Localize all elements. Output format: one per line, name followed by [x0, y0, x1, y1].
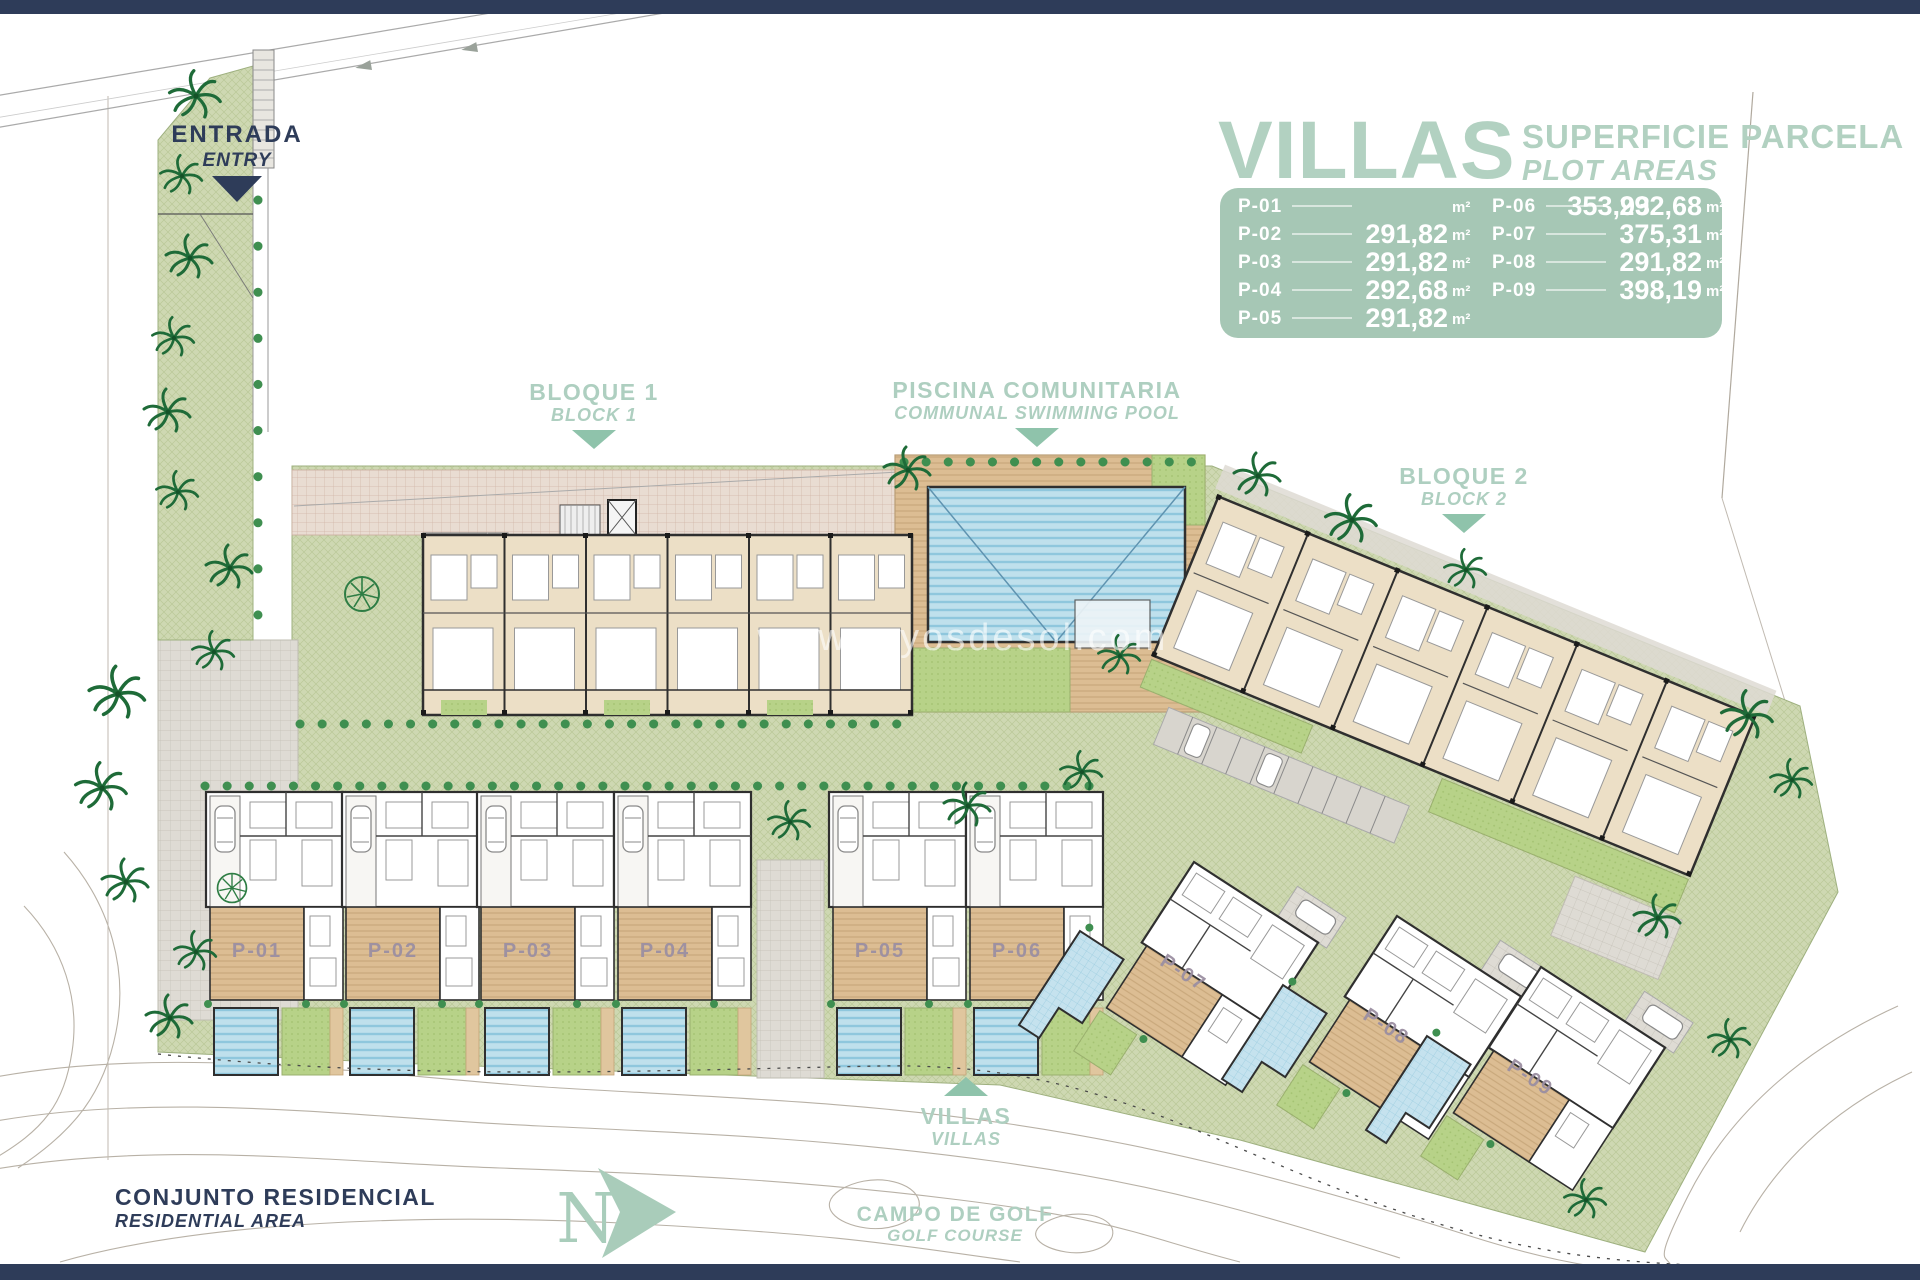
block2-label-en: BLOCK 2	[1421, 489, 1507, 509]
villa-p05	[827, 792, 966, 1075]
legend-row-area: 291,82	[1365, 303, 1448, 333]
legend-row-unit: m²	[1706, 283, 1724, 300]
legend-row-unit: m²	[1452, 199, 1470, 216]
top-navy-bar	[0, 0, 1920, 14]
legend-row-plot: P-03	[1238, 252, 1282, 273]
block1-label-en: BLOCK 1	[551, 405, 637, 425]
legend-row-plot: P-06	[1492, 196, 1536, 217]
plot-label-p02: P-02	[368, 940, 418, 962]
bottom-navy-bar	[0, 1264, 1920, 1280]
legend-row-plot: P-05	[1238, 308, 1282, 329]
plot-label-p04: P-04	[640, 940, 690, 962]
legend-subtitle: SUPERFICIE PARCELA	[1522, 118, 1904, 155]
legend-row-area: 292,68	[1365, 275, 1448, 305]
villas-pointer-es: VILLAS	[921, 1103, 1012, 1129]
legend-row-unit: m²	[1452, 227, 1470, 244]
plot-label-p03: P-03	[503, 940, 553, 962]
legend-row-unit: m²	[1706, 199, 1724, 216]
legend-row-unit: m²	[1452, 311, 1470, 328]
legend-row-plot: P-04	[1238, 280, 1282, 301]
legend-row-unit: m²	[1706, 255, 1724, 272]
legend-row-area: 291,82	[1365, 219, 1448, 249]
legend-row-unit: m²	[1452, 283, 1470, 300]
residential-label-en: RESIDENTIAL AREA	[115, 1211, 306, 1231]
legend-row-area: 375,31	[1619, 219, 1702, 249]
legend-row-area: 291,82	[1365, 247, 1448, 277]
legend-row-plot: P-08	[1492, 252, 1536, 273]
villas-pointer-en: VILLAS	[931, 1129, 1001, 1149]
legend-row-area: 292,68	[1619, 191, 1702, 221]
site-plan-canvas: P-01 P-02 P-03 P-04 P-05 P-06 P-07 P-08 …	[0, 0, 1920, 1280]
legend-title: VILLAS	[1218, 105, 1516, 196]
entrance-label-es: ENTRADA	[171, 121, 302, 148]
legend-row-plot: P-02	[1238, 224, 1282, 245]
legend-row-unit: m²	[1706, 227, 1724, 244]
communal-pool-label-es: PISCINA COMUNITARIA	[892, 377, 1181, 403]
golf-label-en: GOLF COURSE	[887, 1226, 1023, 1245]
legend-row-area: 398,19	[1619, 275, 1702, 305]
entrance-label-en: ENTRY	[202, 150, 272, 171]
watermark: www.rayosdesol.com	[757, 617, 1169, 659]
block1-label-es: BLOQUE 1	[529, 379, 659, 405]
legend-subtitle-en: PLOT AREAS	[1522, 155, 1718, 187]
plot-label-p06: P-06	[992, 940, 1042, 962]
golf-label-es: CAMPO DE GOLF	[857, 1203, 1054, 1226]
legend-row-plot: P-01	[1238, 196, 1282, 217]
legend-row-area: 291,82	[1619, 247, 1702, 277]
villa-p01	[204, 792, 343, 1075]
residential-label-es: CONJUNTO RESIDENCIAL	[115, 1184, 436, 1210]
villas-row-path	[757, 860, 824, 1078]
plot-label-p05: P-05	[855, 940, 905, 962]
villa-p04	[612, 792, 751, 1075]
site-plan-svg: P-01 P-02 P-03 P-04 P-05 P-06 P-07 P-08 …	[0, 0, 1920, 1280]
villa-p03	[475, 792, 614, 1075]
communal-pool-label-en: COMMUNAL SWIMMING POOL	[894, 403, 1180, 423]
legend-row-unit: m²	[1452, 255, 1470, 272]
legend-row-plot: P-07	[1492, 224, 1536, 245]
block2-label-es: BLOQUE 2	[1399, 463, 1529, 489]
villa-p02	[340, 792, 479, 1075]
plot-label-p01: P-01	[232, 940, 282, 962]
legend-row-plot: P-09	[1492, 280, 1536, 301]
